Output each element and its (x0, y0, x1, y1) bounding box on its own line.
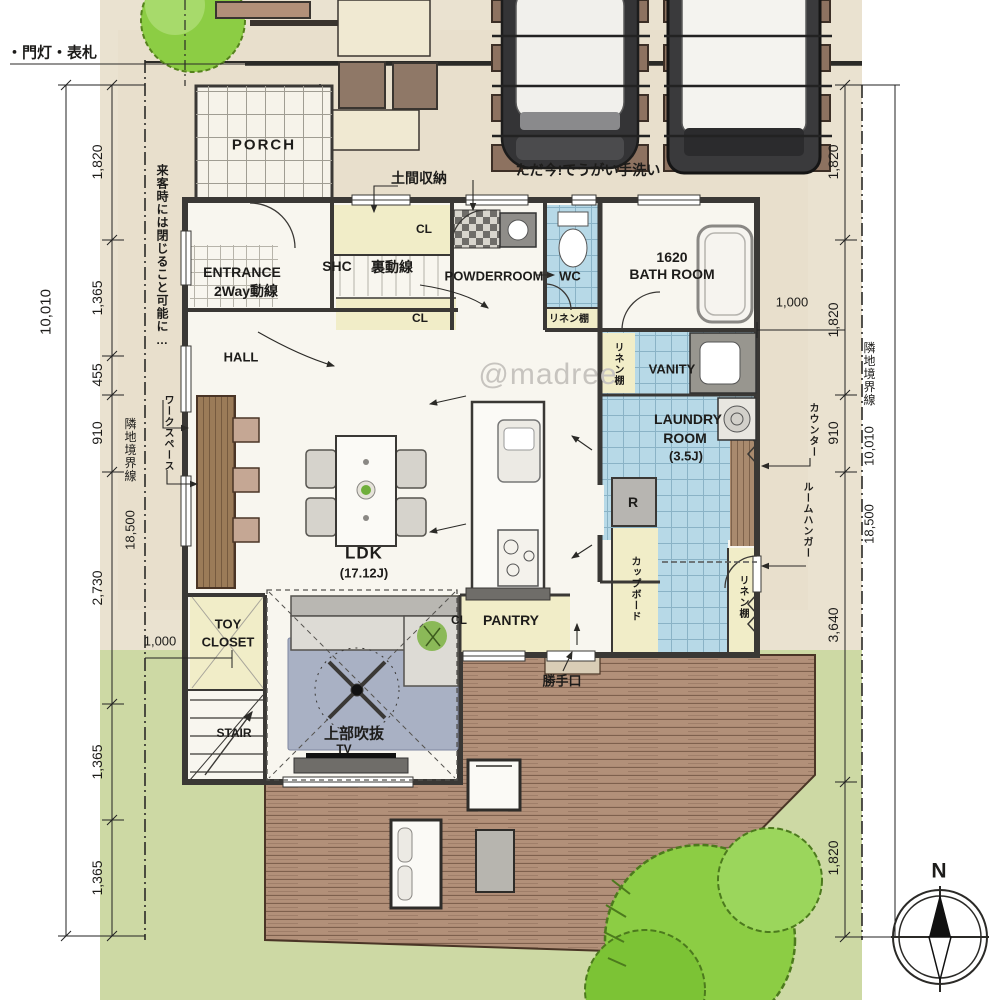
room-porch: PORCH (232, 138, 296, 153)
workspace-label: ワークスペース (162, 395, 172, 472)
entrance-2way-label: 2Way動線 (214, 284, 278, 298)
cl-pantry-label: CL (451, 614, 467, 626)
dim-left-offset: 1,000 (144, 635, 177, 648)
dim-right-3: 3,640 (826, 607, 840, 642)
floor-plan: ・門灯・表札 PORCH 土間収納 ただ今!でうがい手洗い CL ENTRANC… (0, 0, 1000, 1000)
compass-north-label: N (931, 861, 946, 882)
room-bath: BATH ROOM (629, 267, 714, 281)
room-wc: WC (559, 270, 581, 283)
ura-dousen-label: 裏動線 (371, 260, 413, 274)
dim-right-boundary-len: 18,500 (863, 504, 876, 544)
kitchen-island (466, 402, 550, 600)
floor-plan-drawing (0, 0, 1000, 1000)
laundry-opening (596, 485, 604, 535)
katteguchi-label: 勝手口 (542, 675, 581, 688)
doma-storage-label: 土間収納 (391, 171, 447, 185)
tv-label: TV (336, 743, 351, 755)
room-hanger-label: ルームハンガー (801, 482, 811, 559)
compass-rose (891, 886, 989, 992)
sofa-back (291, 596, 458, 616)
dim-left-5: 1,365 (90, 744, 104, 779)
watermark: @madree (478, 360, 617, 390)
dim-left-0: 1,820 (90, 144, 104, 179)
tadaima-note: ただ今!でうがい手洗い (516, 163, 661, 177)
tv-board (294, 758, 408, 773)
dim-left-1: 1,365 (90, 280, 104, 315)
toilet (559, 229, 587, 267)
room-hall: HALL (224, 351, 259, 364)
dim-right-offset: 1,000 (776, 296, 809, 309)
room-ldk: LDK (345, 545, 383, 562)
dim-left-3: 910 (90, 421, 104, 444)
linen-wc-label: リネン棚 (549, 315, 589, 325)
room-toy-2: CLOSET (202, 636, 255, 649)
dim-left-total: 10,010 (39, 289, 54, 335)
room-entrance: ENTRANCE (203, 265, 281, 279)
boundary-label-right: 隣地境界線 (863, 342, 875, 407)
dim-left-4: 2,730 (90, 570, 104, 605)
dim-left-6: 1,365 (90, 860, 104, 895)
visitor-note: 来客時には閉じること可能に… (156, 164, 168, 348)
fridge-label: R (628, 495, 638, 509)
deck-table (476, 830, 514, 892)
room-vanity: VANITY (649, 363, 696, 376)
gate-sign-note: ・門灯・表札 (7, 46, 97, 61)
compass-needle-north (929, 894, 951, 937)
cl-top-label: CL (416, 223, 432, 235)
room-laundry-2: ROOM (663, 431, 707, 445)
garden-bench (216, 2, 310, 18)
room-bath-size: 1620 (656, 250, 687, 264)
room-powder: POWDERROOM (445, 270, 544, 283)
boundary-label-left: 隣地境界線 (124, 418, 136, 483)
deck-chair (468, 760, 520, 810)
room-laundry-1: LAUNDRY (654, 412, 722, 426)
room-stair: STAIR (216, 727, 251, 739)
room-ldk-size: (17.12J) (340, 567, 388, 580)
dim-right-total: 10,010 (863, 426, 876, 466)
room-shc: SHC (322, 259, 352, 273)
dim-right-2: 910 (826, 421, 840, 444)
room-toy-1: TOY (215, 618, 242, 631)
stove (498, 530, 538, 586)
powder-entry-tile (452, 210, 500, 248)
toilet-tank (558, 212, 588, 226)
linen-kitchen-label: リネン棚 (737, 575, 747, 619)
counter-label: カウンター (807, 403, 817, 458)
cupboard-label: カップボード (629, 556, 639, 622)
dim-right-4: 1,820 (826, 840, 840, 875)
car-1 (502, 0, 638, 168)
back-door (547, 651, 595, 661)
dim-left-2: 455 (90, 363, 104, 386)
dim-right-1: 1,820 (826, 302, 840, 337)
fukinuke-label: 上部吹抜 (324, 727, 384, 742)
room-laundry-3: (3.5J) (669, 450, 703, 463)
compass-needle-south (929, 937, 951, 980)
dim-right-0: 1,820 (826, 144, 840, 179)
dim-left-boundary-len: 18,500 (124, 510, 137, 550)
cl-mid-label: CL (412, 312, 428, 324)
room-pantry: PANTRY (483, 613, 539, 627)
